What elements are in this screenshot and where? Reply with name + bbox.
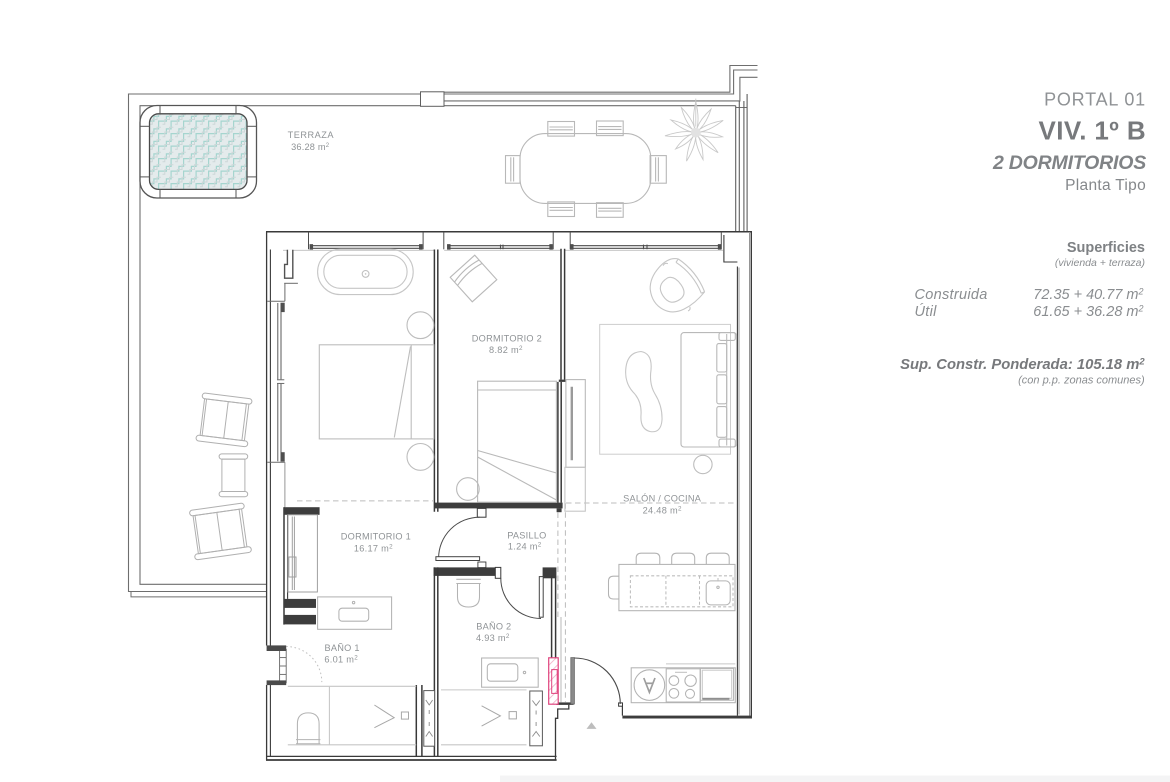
svg-text:61.65 + 36.28 m2: 61.65 + 36.28 m2: [1033, 304, 1143, 321]
svg-text:VIV. 1º B: VIV. 1º B: [1038, 116, 1146, 146]
svg-text:DORMITORIO 1: DORMITORIO 1: [341, 532, 411, 542]
svg-text:DORMITORIO 2: DORMITORIO 2: [472, 334, 542, 344]
svg-text:PORTAL 01: PORTAL 01: [1044, 90, 1146, 110]
svg-text:BAÑO 2: BAÑO 2: [476, 622, 511, 632]
svg-text:4.93 m2: 4.93 m2: [476, 633, 510, 643]
svg-text:Útil: Útil: [915, 303, 938, 320]
svg-text:(vivienda + terraza): (vivienda + terraza): [1055, 257, 1145, 269]
svg-text:6.01 m2: 6.01 m2: [324, 654, 358, 664]
svg-text:1.24 m2: 1.24 m2: [508, 542, 542, 552]
svg-text:24.48 m2: 24.48 m2: [643, 506, 682, 516]
svg-text:TERRAZA: TERRAZA: [288, 130, 335, 140]
svg-text:(con p.p. zonas comunes): (con p.p. zonas comunes): [1018, 374, 1145, 386]
svg-text:72.35 + 40.77 m2: 72.35 + 40.77 m2: [1033, 286, 1143, 303]
svg-text:36.28 m2: 36.28 m2: [291, 142, 330, 152]
svg-text:Superficies: Superficies: [1067, 240, 1145, 256]
svg-text:Planta Tipo: Planta Tipo: [1065, 177, 1146, 194]
svg-text:Construida: Construida: [915, 287, 988, 303]
svg-text:8.82 m2: 8.82 m2: [489, 345, 523, 355]
svg-text:BAÑO 1: BAÑO 1: [324, 643, 359, 653]
svg-text:PASILLO: PASILLO: [507, 530, 546, 540]
svg-text:SALÓN / COCINA: SALÓN / COCINA: [623, 494, 702, 504]
svg-text:Sup. Constr. Ponderada: 105.18: Sup. Constr. Ponderada: 105.18 m2: [900, 357, 1145, 374]
svg-text:16.17 m2: 16.17 m2: [354, 544, 393, 554]
svg-text:2 DORMITORIOS: 2 DORMITORIOS: [992, 152, 1146, 174]
